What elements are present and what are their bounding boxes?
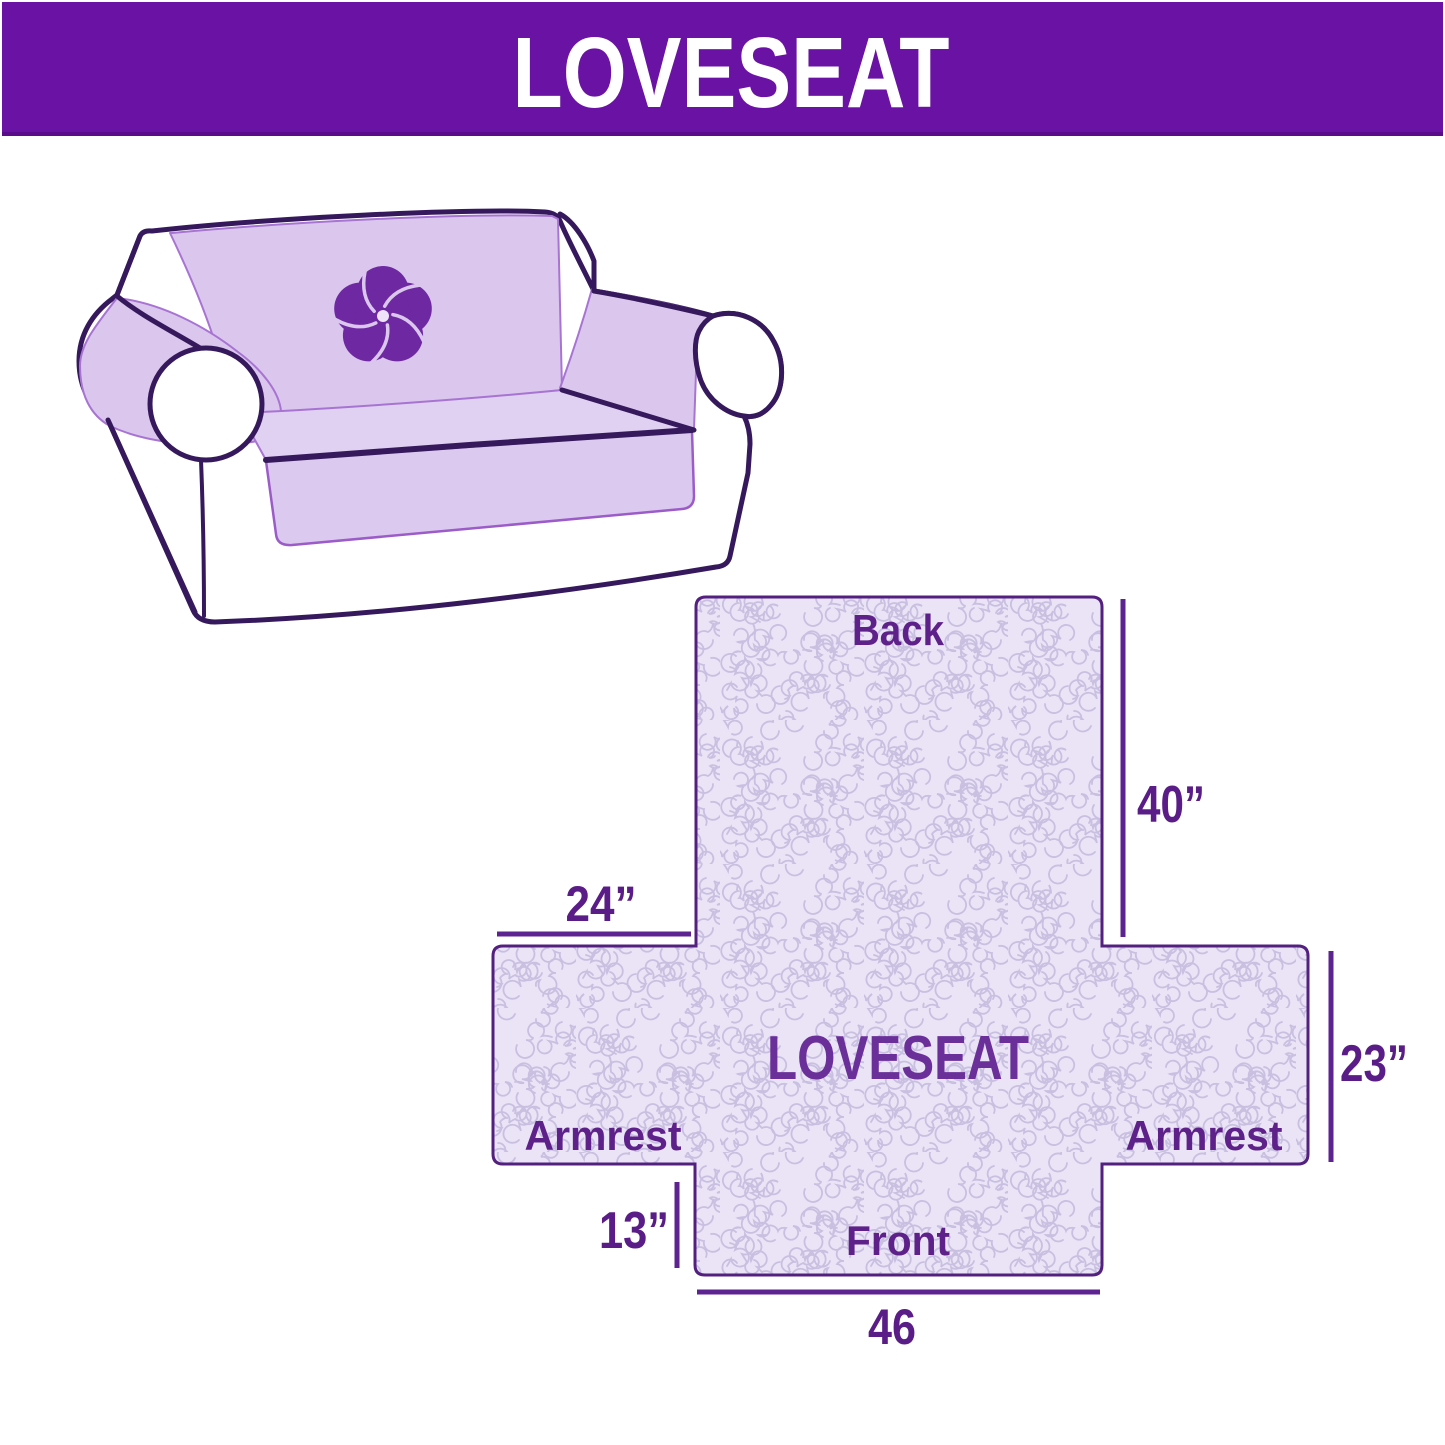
svg-text:LOVESEAT: LOVESEAT bbox=[513, 17, 950, 129]
svg-text:40”: 40” bbox=[1137, 776, 1205, 834]
svg-text:Armrest: Armrest bbox=[525, 1112, 682, 1159]
svg-text:Back: Back bbox=[852, 606, 944, 655]
svg-text:Armrest: Armrest bbox=[1126, 1112, 1283, 1159]
svg-text:13”: 13” bbox=[599, 1202, 669, 1260]
svg-text:24”: 24” bbox=[566, 876, 637, 932]
svg-text:46: 46 bbox=[868, 1299, 916, 1355]
svg-text:LOVESEAT: LOVESEAT bbox=[767, 1024, 1029, 1093]
svg-text:Front: Front bbox=[846, 1217, 950, 1264]
svg-text:23”: 23” bbox=[1340, 1035, 1408, 1093]
